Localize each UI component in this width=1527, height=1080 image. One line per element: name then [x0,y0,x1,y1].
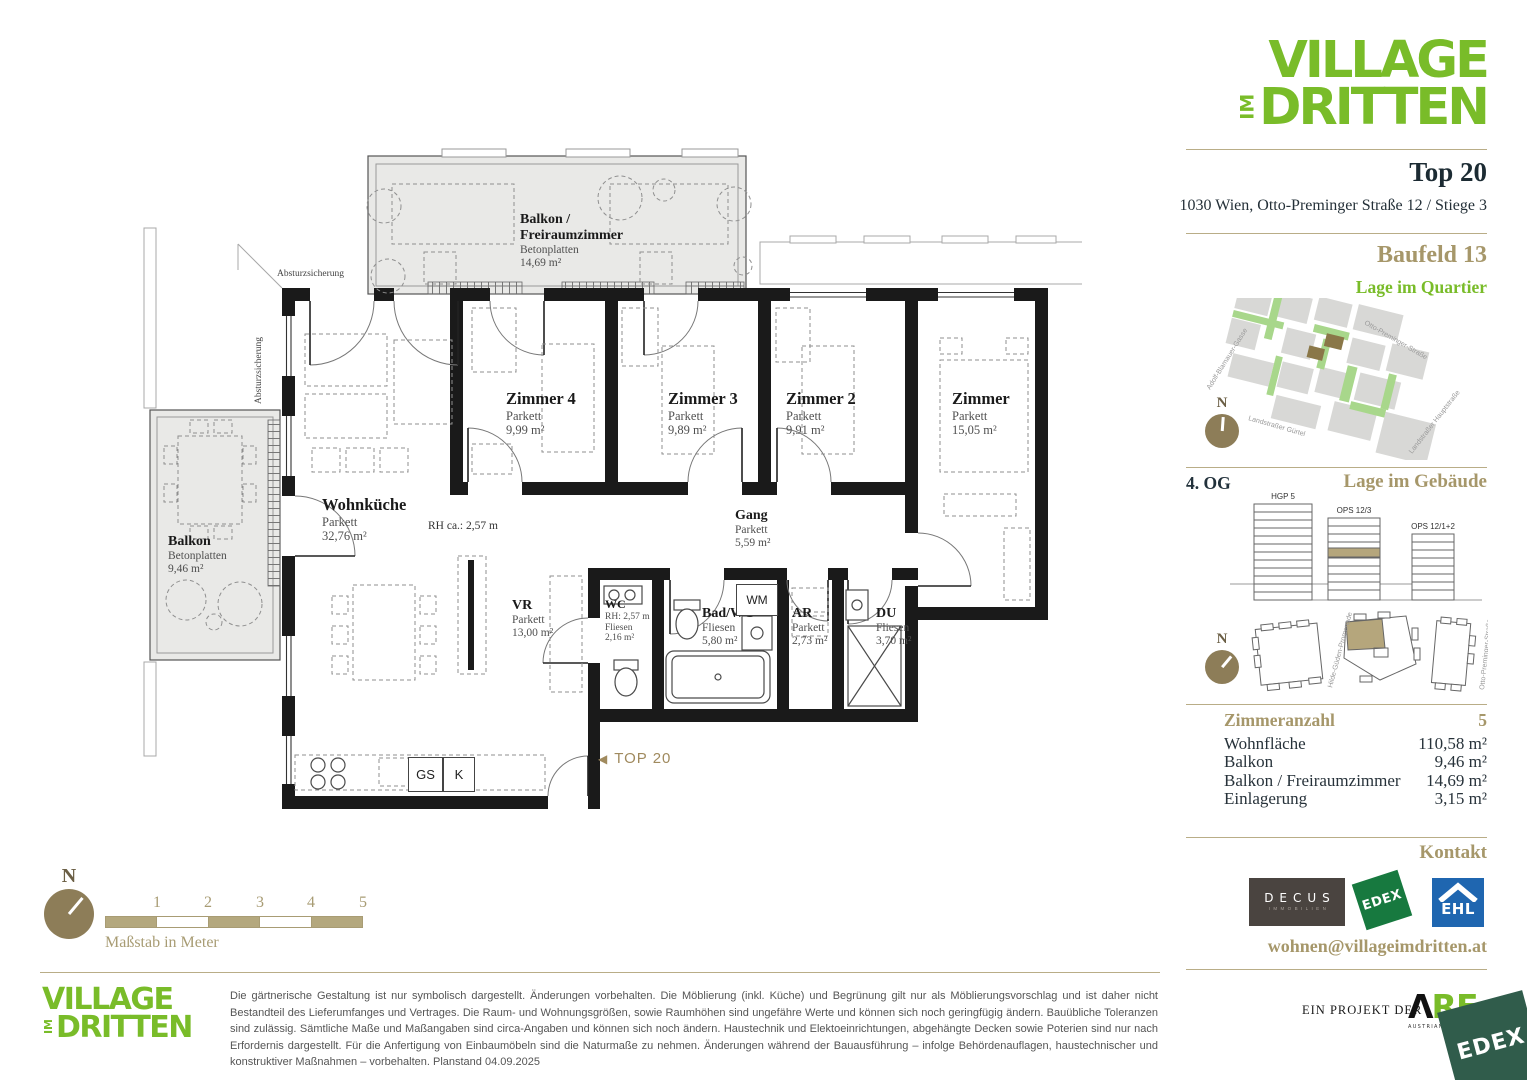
room-label-balkon-freiraumzimmer: Balkon / Freiraumzimmer Betonplatten 14,… [520,212,623,270]
brand-im-rotated: IM [44,1020,54,1034]
room-label-ar: AR Parkett 2,73 m² [792,606,827,648]
gebaeude-diagram: HGP 5 OPS 12/3 OPS 12/1+2 Hilde-Güden-Pr… [1228,488,1488,702]
plan-sheet: Balkon / Freiraumzimmer Betonplatten 14,… [0,0,1527,1080]
room-label-zimmer3: Zimmer 3 Parkett 9,89 m² [668,390,738,437]
dishwasher-cell: GS [408,757,443,792]
room-label-gang: Gang Parkett 5,59 m² [735,508,770,550]
scale-numbers: 1 2 3 4 5 [105,894,363,916]
kontakt-title: Kontakt [1419,842,1487,864]
compass-plan: N [42,866,96,939]
divider [1186,149,1487,150]
room-label-wc: WC RH: 2,57 m Fliesen 2,16 m² [605,598,650,644]
divider [1186,233,1487,234]
divider [1186,467,1487,468]
scale-bar: 1 2 3 4 5 Maßstab in Meter [105,894,363,952]
compass-circle [1205,650,1239,684]
room-label-zimmer: Zimmer Parkett 15,05 m² [952,390,1010,437]
building-label: OPS 12/3 [1337,506,1372,515]
street-label: Otto-Preminger-Straße [1479,619,1488,691]
baufeld-title: Baufeld 13 [1377,242,1487,269]
room-label-zimmer2: Zimmer 2 Parkett 9,91 m² [786,390,856,437]
edex-logo: EDEX [1352,870,1412,930]
room-label-zimmer4: Zimmer 4 Parkett 9,99 m² [506,390,576,437]
contact-email: wohnen@villageimdritten.at [1268,936,1487,957]
table-row: Zimmeranzahl5 [1224,711,1487,730]
room-label-du: DU Fliesen 3,70 m² [876,606,911,648]
divider [1186,969,1487,970]
project-credit: EIN PROJEKT DER [1302,1003,1422,1018]
scale-bar-segments [105,916,363,928]
walls [282,288,1048,809]
scale-label: Maßstab in Meter [105,934,363,952]
compass-gebaeude: N [1200,632,1244,684]
divider [1186,837,1487,838]
facts-table: Zimmeranzahl5 Wohnfläche110,58 m² Balkon… [1224,711,1487,809]
entry-marker: ◀TOP 20 [598,750,671,767]
room-height-note: RH ca.: 2,57 m [428,520,498,532]
building-label: OPS 12/1+2 [1411,522,1455,531]
table-row: Wohnfläche110,58 m² [1224,735,1487,754]
washing-machine-box: WM [736,584,778,616]
disclaimer-text: Die gärtnerische Gestaltung ist nur symb… [230,988,1158,1071]
divider [1186,704,1487,705]
quartier-subtitle: Lage im Quartier [1356,277,1487,298]
fall-protection-label-top: Absturzsicherung [277,269,344,279]
compass-needle [1221,417,1224,431]
entry-arrow-icon: ◀ [598,752,608,766]
brand-logo-footer: VILLAGE IM DRITTEN [42,986,192,1041]
compass-circle [44,889,94,939]
table-row: Balkon9,46 m² [1224,753,1487,772]
compass-needle [68,897,84,915]
brand-im-rotated: IM [1239,97,1256,119]
ehl-roof-icon [1436,882,1480,902]
room-label-balkon: Balkon Betonplatten 9,46 m² [168,534,227,576]
compass-needle [1221,655,1232,667]
compass-quartier: N [1200,396,1244,448]
room-label-vr: VR Parkett 13,00 m² [512,598,553,640]
unit-address: 1030 Wien, Otto-Preminger Straße 12 / St… [1180,197,1487,215]
compass-circle [1205,414,1239,448]
decus-logo: DECUS IMMOBILIEN [1249,878,1345,926]
brand-logo: VILLAGE IM DRITTEN [1237,38,1487,132]
divider [40,972,1160,973]
ehl-logo: EHL [1432,878,1484,927]
building-label: HGP 5 [1271,492,1295,501]
unit-title: Top 20 [1409,157,1487,188]
room-label-wohnkueche: Wohnküche Parkett 32,76 m² [322,496,406,543]
fall-protection-label-left: Absturzsicherung [254,337,264,404]
table-row: Einlagerung3,15 m² [1224,790,1487,809]
floor-level-label: 4. OG [1186,473,1231,494]
fridge-cell: K [443,757,475,792]
table-row: Balkon / Freiraumzimmer14,69 m² [1224,772,1487,791]
